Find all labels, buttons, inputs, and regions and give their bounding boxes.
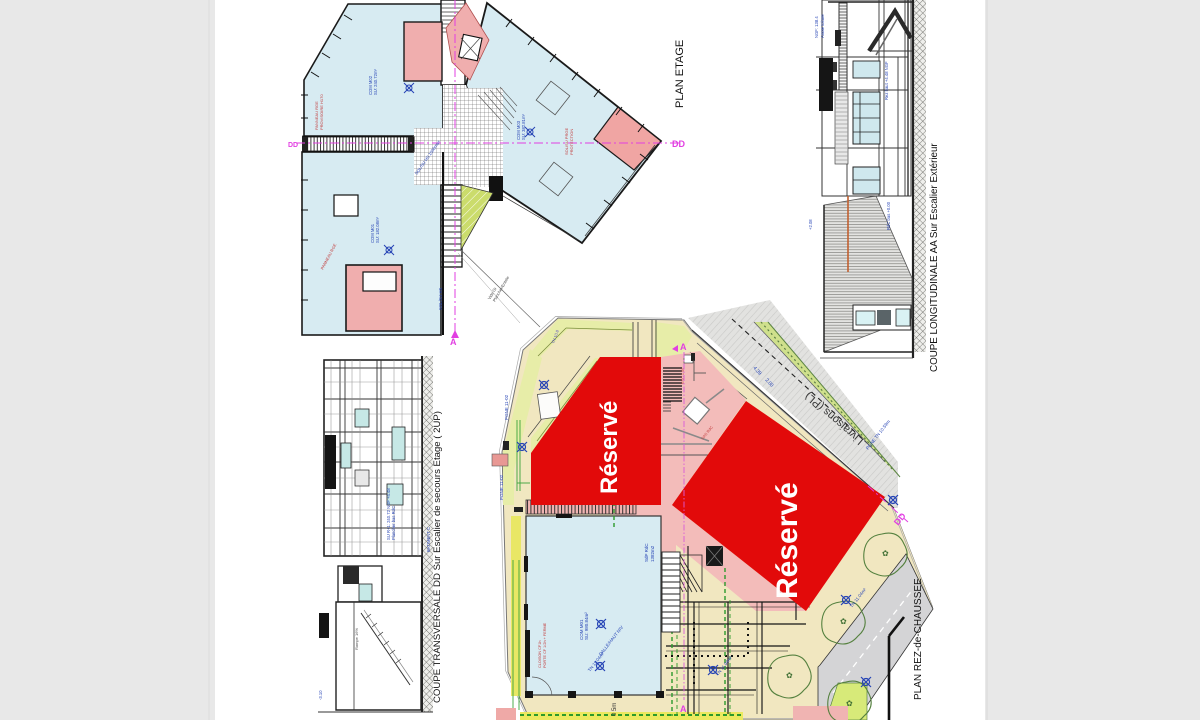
svg-text:Réservé: Réservé xyxy=(596,401,623,494)
svg-text:SU: 182.08m²: SU: 182.08m² xyxy=(375,217,380,243)
svg-text:-3.10: -3.10 xyxy=(318,690,323,700)
svg-text:Arase toiture: Arase toiture xyxy=(820,14,825,38)
svg-text:DD: DD xyxy=(288,142,298,149)
svg-text:RdC bas +0.00: RdC bas +0.00 xyxy=(886,201,891,230)
svg-text:A: A xyxy=(450,337,457,347)
svg-text:✿: ✿ xyxy=(846,699,853,708)
svg-text:PLAN REZ-de-CHAUSSEE: PLAN REZ-de-CHAUSSEE xyxy=(913,578,924,700)
svg-text:✿: ✿ xyxy=(840,617,847,626)
svg-text:COUPE TRANSVERSALE DD Sur Esca: COUPE TRANSVERSALE DD Sur Escalier de se… xyxy=(432,411,443,703)
svg-text:PLAN ETAGE: PLAN ETAGE xyxy=(674,40,686,108)
svg-text:SU: 240.72m²: SU: 240.72m² xyxy=(373,69,378,95)
svg-text:+2.08: +2.08 xyxy=(808,219,813,230)
svg-text:A: A xyxy=(680,342,687,352)
svg-text:NGF: 138.4: NGF: 138.4 xyxy=(814,16,819,38)
svg-text:BATIMENT C: BATIMENT C xyxy=(426,527,431,552)
svg-text:A: A xyxy=(680,704,687,714)
svg-text:0 5m: 0 5m xyxy=(612,703,618,716)
svg-text:SU: 980.84m²: SU: 980.84m² xyxy=(584,612,589,640)
svg-text:PGNE 11-02: PGNE 11-02 xyxy=(499,474,504,500)
svg-text:CLOISON CF1h: CLOISON CF1h xyxy=(538,641,542,668)
svg-text:PROTECTION: PROTECTION xyxy=(569,129,574,155)
svg-text:SOL/SU HS: SOL/SU HS xyxy=(438,287,443,310)
svg-text:Réservé: Réservé xyxy=(771,482,804,599)
svg-text:PGNE 11-02: PGNE 11-02 xyxy=(504,394,509,420)
svg-text:SdP RdC: SdP RdC xyxy=(644,543,649,562)
svg-text:✿: ✿ xyxy=(882,549,889,558)
svg-text:✿: ✿ xyxy=(786,671,793,680)
svg-text:1382m2: 1382m2 xyxy=(650,545,655,562)
svg-text:PORTE CF 1/2h + FERME: PORTE CF 1/2h + FERME xyxy=(543,622,547,668)
svg-text:PROVISOIRE H170: PROVISOIRE H170 xyxy=(319,94,324,130)
svg-text:DD: DD xyxy=(672,139,685,149)
svg-text:COUPE LONGITUDINALE AA Sur Esc: COUPE LONGITUDINALE AA Sur Escalier Exté… xyxy=(929,143,940,372)
svg-text:Rez haut +4.48 NGF: Rez haut +4.48 NGF xyxy=(884,61,889,100)
svg-text:Plancher bas RdC: Plancher bas RdC xyxy=(391,506,396,540)
svg-text:Rampe 16%: Rampe 16% xyxy=(354,628,359,650)
